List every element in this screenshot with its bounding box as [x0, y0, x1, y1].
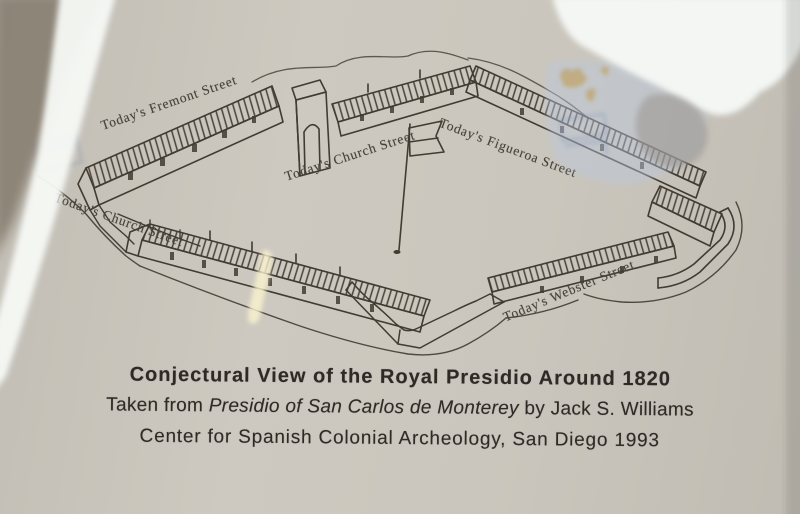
photo-of-interpretive-sign: Today's Fremont Street Today's Church St…: [0, 0, 800, 514]
caption-source-suffix: by Jack S. Williams: [519, 398, 694, 421]
caption-book-title: Presidio of San Carlos de Monterey: [209, 395, 519, 419]
caption-block: Conjectural View of the Royal Presidio A…: [0, 359, 800, 458]
northeast-wall-building: [466, 66, 706, 198]
caption-source-prefix: Taken from: [106, 394, 209, 416]
street-ground-lines: [38, 176, 742, 355]
